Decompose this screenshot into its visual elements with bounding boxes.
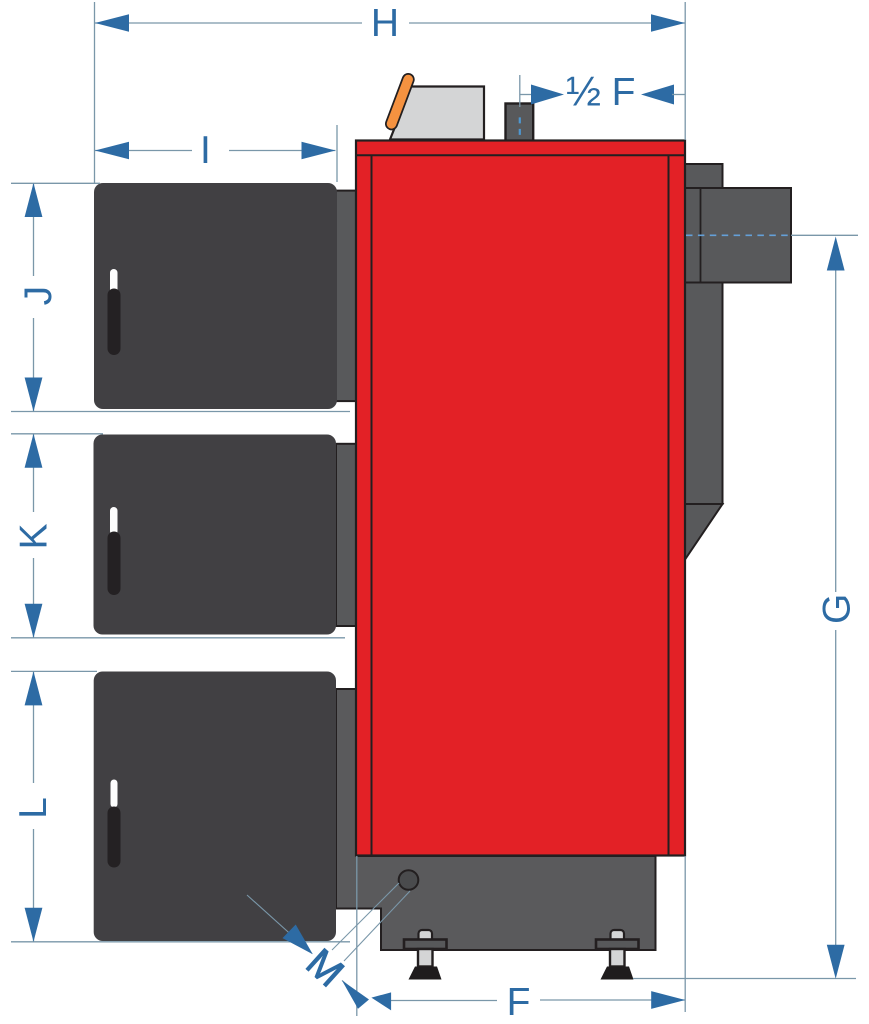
svg-text:L: L [12,797,55,819]
svg-text:H: H [371,2,399,45]
svg-text:G: G [816,594,859,624]
svg-text:K: K [13,523,56,549]
svg-text:F: F [507,981,531,1024]
svg-text:I: I [200,129,211,172]
svg-text:½: ½ [566,68,601,115]
svg-text:J: J [17,286,60,306]
svg-text:F: F [612,71,636,114]
